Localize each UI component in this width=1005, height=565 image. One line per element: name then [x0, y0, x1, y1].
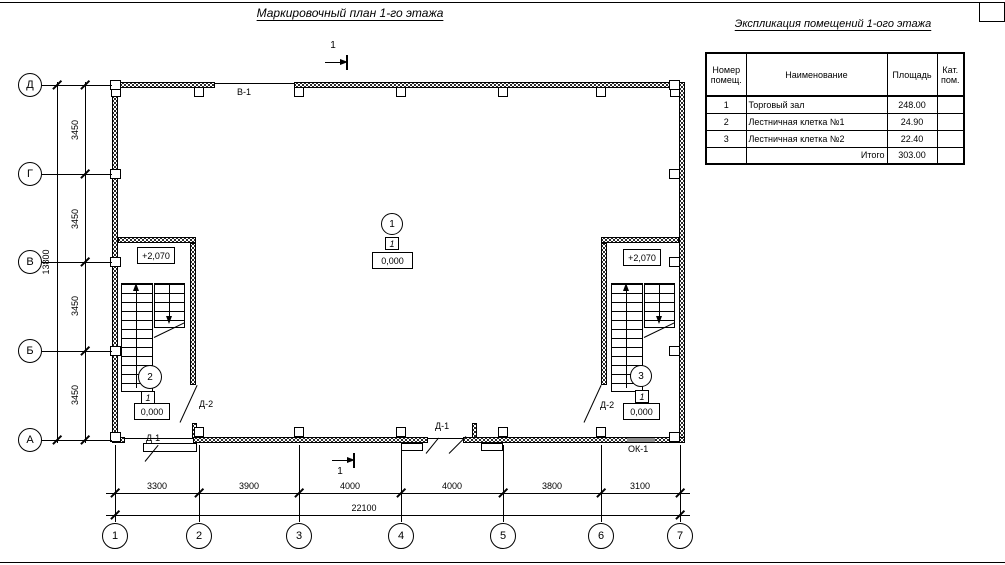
door-label-d1: Д-1 [435, 421, 449, 431]
cell-cat [937, 96, 964, 113]
col-header-number: Номер помещ. [706, 53, 746, 96]
axis-bubble-col: 5 [490, 523, 516, 549]
stair-arrow-line [169, 285, 170, 318]
gate-label: В-1 [237, 87, 251, 97]
room-category-box: 1 [635, 390, 649, 403]
pilaster [194, 427, 204, 437]
axis-extension [401, 445, 402, 522]
entrance-landing [143, 443, 197, 452]
dim-label: 3100 [615, 481, 665, 491]
cell-empty [937, 147, 964, 164]
cell-cat [937, 113, 964, 130]
cell-area: 24.90 [887, 113, 937, 130]
pilaster [194, 87, 204, 97]
section-mark-number: 1 [333, 466, 347, 477]
wall-bottom [193, 437, 428, 443]
pilaster [294, 427, 304, 437]
table-total-row: Итого 303.00 [706, 147, 964, 164]
door-label-d1: Д-1 [146, 433, 160, 443]
section-arrow-tick [346, 55, 348, 70]
partition-left-stair-side [190, 243, 196, 385]
cell-area: 248.00 [887, 96, 937, 113]
cell-name: Торговый зал [746, 96, 887, 113]
section-mark-number: 1 [326, 40, 340, 51]
table-header-row: Номер помещ. Наименование Площадь Кат. п… [706, 53, 964, 96]
cell-number: 2 [706, 113, 746, 130]
dim-label: 3300 [132, 481, 182, 491]
stair-arrow-line [136, 288, 137, 388]
axis-bubble-col: 4 [388, 523, 414, 549]
axis-extension [503, 445, 504, 522]
col-header-area: Площадь [887, 53, 937, 96]
pilaster [498, 87, 508, 97]
partition-right-stair-side [601, 243, 607, 385]
cell-empty [706, 147, 746, 164]
door-leaf-line [180, 385, 198, 423]
axis-bubble-col: 7 [667, 523, 693, 549]
dim-label: 3450 [70, 375, 80, 415]
door-leaf-line [584, 385, 602, 423]
room-elevation-box: 0,000 [623, 403, 660, 420]
dim-label-total: 22100 [334, 503, 394, 513]
stair-arrow-up-icon [623, 283, 629, 291]
elevation-box: +2,070 [137, 247, 175, 264]
axis-bubble-col: 6 [588, 523, 614, 549]
pilaster [669, 80, 680, 90]
axis-bubble-row: Д [18, 73, 42, 97]
stair-arrow-up-icon [133, 283, 139, 291]
axis-line [42, 351, 112, 352]
dim-label: 4000 [427, 481, 477, 491]
pilaster [596, 427, 606, 437]
table-row: 2 Лестничная клетка №1 24.90 [706, 113, 964, 130]
total-label: Итого [746, 147, 887, 164]
door-leaf-post [472, 423, 477, 438]
axis-extension [115, 445, 116, 522]
axis-bubble-col: 1 [102, 523, 128, 549]
section-arrow-tick [353, 453, 355, 468]
stair-arrow-down-icon [656, 316, 662, 324]
col-header-name: Наименование [746, 53, 887, 96]
axis-bubble-row: Г [18, 162, 42, 186]
stair-arrow-down-icon [166, 316, 172, 324]
dim-label: 3800 [527, 481, 577, 491]
wall-top [294, 82, 685, 88]
frame-corner-box [979, 2, 1005, 22]
gate-opening-line [215, 83, 294, 84]
pilaster [596, 87, 606, 97]
col-header-cat: Кат. пом. [937, 53, 964, 96]
partition-right-stair-top [601, 237, 679, 243]
elevation-box: +2,070 [623, 249, 661, 266]
door-opening-line [428, 438, 463, 439]
axis-extension [601, 445, 602, 522]
stair-arrow-line [659, 285, 660, 318]
table-row: 1 Торговый зал 248.00 [706, 96, 964, 113]
pilaster [669, 257, 680, 267]
room-number-bubble: 3 [630, 365, 652, 387]
axis-bubble-row: Б [18, 339, 42, 363]
pilaster [396, 427, 406, 437]
cell-cat [937, 130, 964, 147]
room-elevation-box: 0,000 [372, 252, 413, 269]
entrance-landing [481, 443, 503, 451]
axis-bubble-col: 2 [186, 523, 212, 549]
axis-bubble-row: А [18, 428, 42, 452]
axis-line [42, 262, 112, 263]
dim-label-total: 13800 [41, 240, 51, 284]
partition-left-stair-top [118, 237, 196, 243]
door-label-d2: Д-2 [199, 399, 213, 409]
dim-label: 4000 [325, 481, 375, 491]
cell-name: Лестничная клетка №1 [746, 113, 887, 130]
window-fill [627, 438, 655, 442]
table-row: 3 Лестничная клетка №2 22.40 [706, 130, 964, 147]
cell-name: Лестничная клетка №2 [746, 130, 887, 147]
dim-line-total-horiz [106, 515, 690, 516]
cell-area: 22.40 [887, 130, 937, 147]
frame-top-line [0, 2, 1005, 3]
axis-line [42, 440, 112, 441]
axis-extension [299, 445, 300, 522]
pilaster [669, 432, 680, 442]
table-title: Экспликация помещений 1-ого этажа [708, 18, 958, 30]
explication-table: Номер помещ. Наименование Площадь Кат. п… [705, 52, 965, 165]
cell-number: 1 [706, 96, 746, 113]
pilaster [294, 87, 304, 97]
axis-extension [199, 445, 200, 522]
door-label-d2: Д-2 [600, 400, 614, 410]
drawing-sheet: Маркировочный план 1-го этажа Экспликаци… [0, 0, 1005, 565]
entrance-landing [401, 443, 423, 451]
room-category-box: 1 [385, 237, 399, 250]
pilaster [498, 427, 508, 437]
axis-bubble-col: 3 [286, 523, 312, 549]
plan-title: Маркировочный план 1-го этажа [150, 6, 550, 20]
stair-arrow-line [626, 288, 627, 388]
axis-line [42, 174, 112, 175]
axis-bubble-row: В [18, 250, 42, 274]
total-value: 303.00 [887, 147, 937, 164]
window-label-ok1: ОК-1 [628, 444, 648, 454]
room-number-bubble: 2 [138, 365, 162, 389]
frame-bottom-line [0, 562, 1005, 563]
cell-number: 3 [706, 130, 746, 147]
axis-line [42, 85, 112, 86]
room-elevation-box: 0,000 [134, 403, 170, 420]
dim-line-total-vert [57, 82, 58, 443]
pilaster [669, 346, 680, 356]
pilaster [669, 169, 680, 179]
room-number-bubble: 1 [381, 213, 403, 235]
axis-extension [680, 445, 681, 522]
pilaster [396, 87, 406, 97]
dim-label: 3900 [224, 481, 274, 491]
dim-label: 3450 [70, 110, 80, 150]
dim-label: 3450 [70, 286, 80, 326]
dim-label: 3450 [70, 199, 80, 239]
